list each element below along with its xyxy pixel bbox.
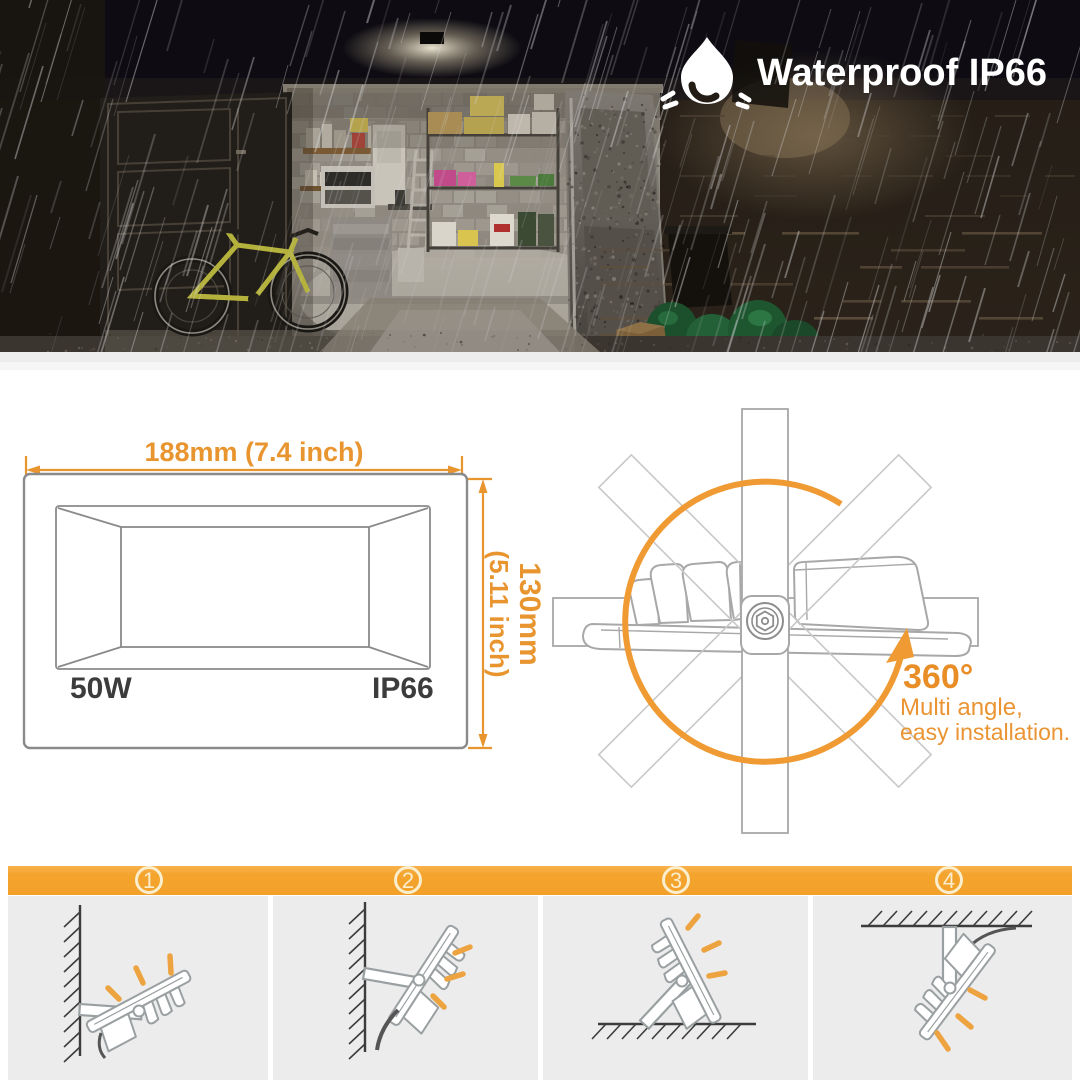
svg-text:(5.11 inch): (5.11 inch) [484,550,514,677]
svg-text:4: 4 [943,868,955,893]
svg-text:Waterproof IP66: Waterproof IP66 [757,52,1047,94]
svg-text:IP66: IP66 [372,672,434,705]
svg-text:130mm: 130mm [513,562,546,665]
svg-text:188mm (7.4 inch): 188mm (7.4 inch) [144,437,363,467]
svg-text:50W: 50W [70,672,132,705]
svg-text:easy installation.: easy installation. [900,719,1070,745]
svg-text:Multi angle,: Multi angle, [900,694,1023,721]
svg-text:2: 2 [402,868,414,893]
svg-text:360°: 360° [903,658,973,696]
svg-text:3: 3 [670,868,682,893]
svg-text:1: 1 [143,868,155,893]
